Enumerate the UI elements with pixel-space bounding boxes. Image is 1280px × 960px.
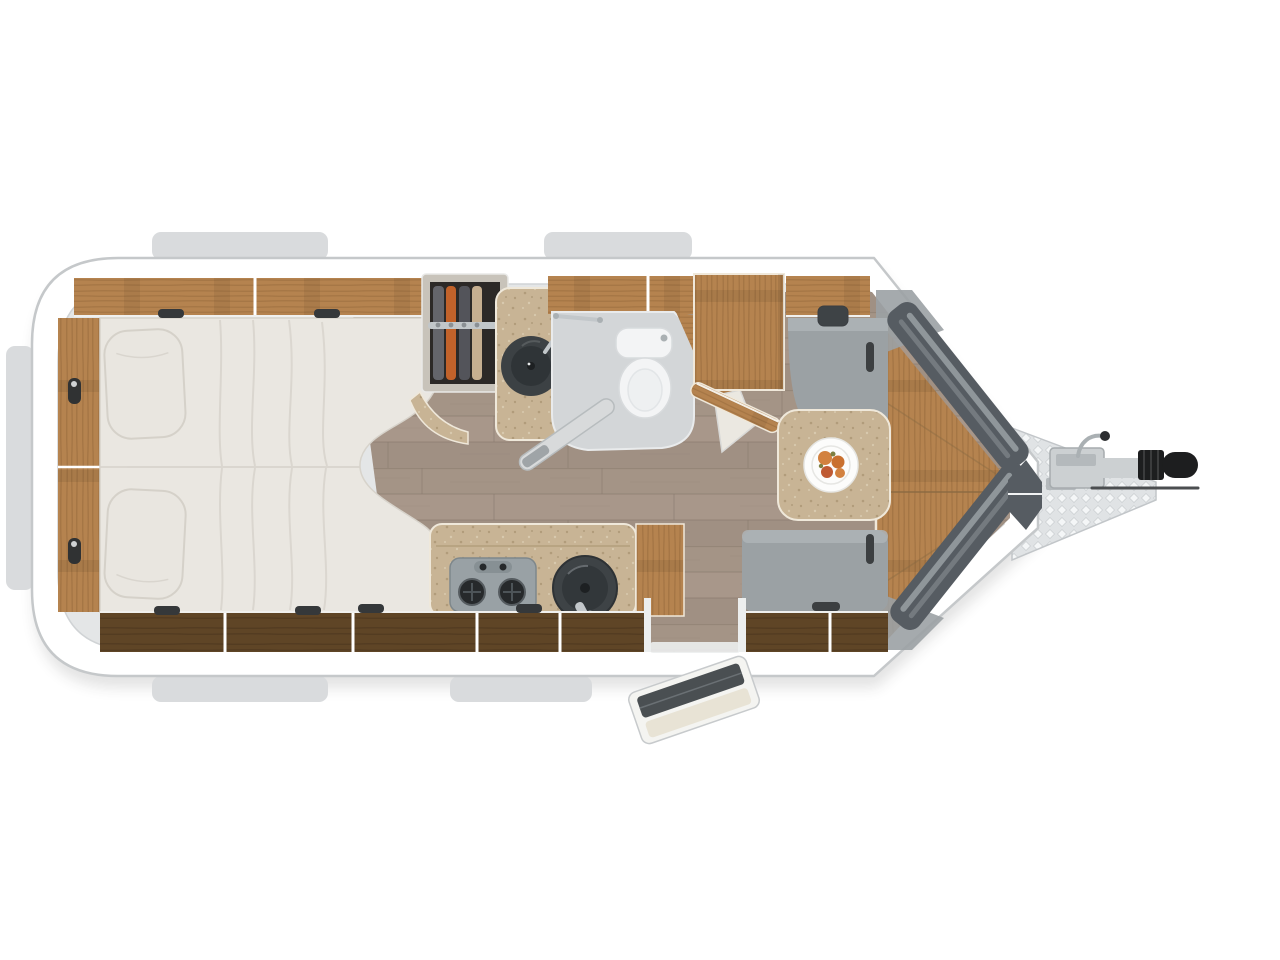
round-sink bbox=[553, 556, 617, 620]
garment-beige bbox=[472, 286, 482, 380]
pillow-bottom bbox=[103, 488, 187, 600]
door-sill bbox=[650, 642, 740, 653]
counter-flap bbox=[636, 524, 684, 616]
awning-top-right bbox=[544, 232, 692, 260]
sink-drain bbox=[580, 583, 590, 593]
hitch-head bbox=[1138, 450, 1198, 480]
fruit bbox=[818, 451, 832, 465]
pillow-top bbox=[103, 328, 187, 440]
headboard-shelf bbox=[58, 318, 100, 612]
overhead-lockers-top bbox=[74, 278, 428, 316]
floor-plan-canvas bbox=[0, 0, 1280, 960]
fruit-plate bbox=[804, 438, 858, 492]
tabletop-appliance bbox=[818, 306, 848, 326]
awning-rear bbox=[6, 346, 34, 590]
tall-cabinet bbox=[694, 274, 784, 390]
overhead-lockers-bottom bbox=[100, 604, 888, 652]
coupler-neck bbox=[1100, 458, 1142, 478]
bathroom-shelf bbox=[548, 276, 698, 314]
garment-gray-1 bbox=[433, 286, 444, 380]
awning-bottom-right bbox=[450, 676, 592, 702]
two-burner-stove bbox=[450, 558, 536, 612]
awning-top-left bbox=[152, 232, 328, 260]
garment-gray-2 bbox=[459, 286, 470, 380]
garment-orange bbox=[446, 286, 456, 380]
flush-button bbox=[661, 335, 668, 342]
toilet bbox=[616, 328, 672, 418]
awning-bottom-left bbox=[152, 676, 328, 702]
